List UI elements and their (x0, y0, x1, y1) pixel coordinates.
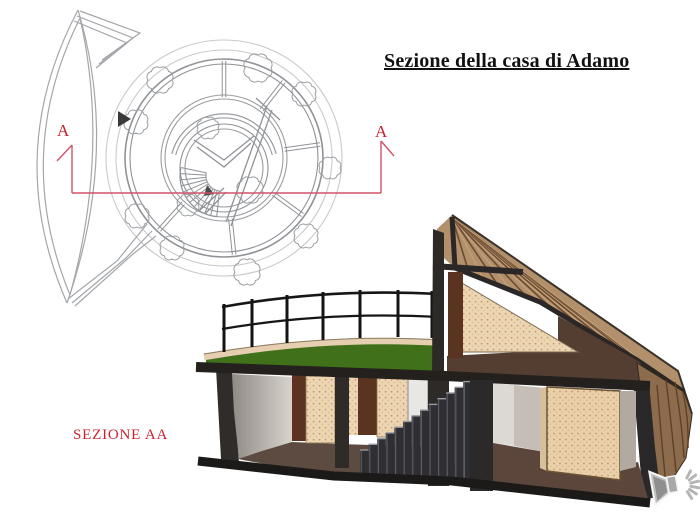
plan-tree-symbols (124, 54, 341, 285)
speaker-sound-waves (687, 471, 699, 499)
speaker-box[interactable] (666, 476, 678, 493)
plan-corridor-wall-inner (165, 99, 283, 217)
cut-wall-left-band (432, 229, 444, 378)
stair-right-column (470, 380, 493, 491)
right-room-back-wall-a (493, 383, 514, 446)
right-panel-front (547, 387, 620, 480)
section-marker-a-right: A (375, 122, 388, 141)
door-2 (358, 376, 377, 435)
attic-door (448, 272, 463, 358)
plan-outer-wall-inner (130, 64, 318, 252)
column-1 (335, 373, 349, 468)
section-3d-render (196, 215, 692, 503)
section-aa-label: SEZIONE AA (73, 427, 168, 444)
plan-core-circle (180, 124, 268, 212)
door-1 (292, 375, 306, 441)
plan-outer-wall (125, 59, 323, 257)
slide-graphics: A A (0, 0, 700, 525)
slide-title: Sezione della casa di Adamo (384, 50, 684, 73)
right-panel-side (540, 387, 547, 471)
right-gray-wall (620, 391, 636, 471)
wall-beige-a (306, 376, 335, 443)
section-marker-a-left: A (57, 121, 70, 140)
plan-site-circle-outer (106, 40, 342, 276)
section-cut-line (57, 141, 394, 193)
wall-beige-b (349, 375, 359, 435)
plan-crescent-wing (37, 10, 156, 306)
presentation-slide: A A (0, 0, 700, 525)
floor-plan-drawing (37, 10, 342, 306)
